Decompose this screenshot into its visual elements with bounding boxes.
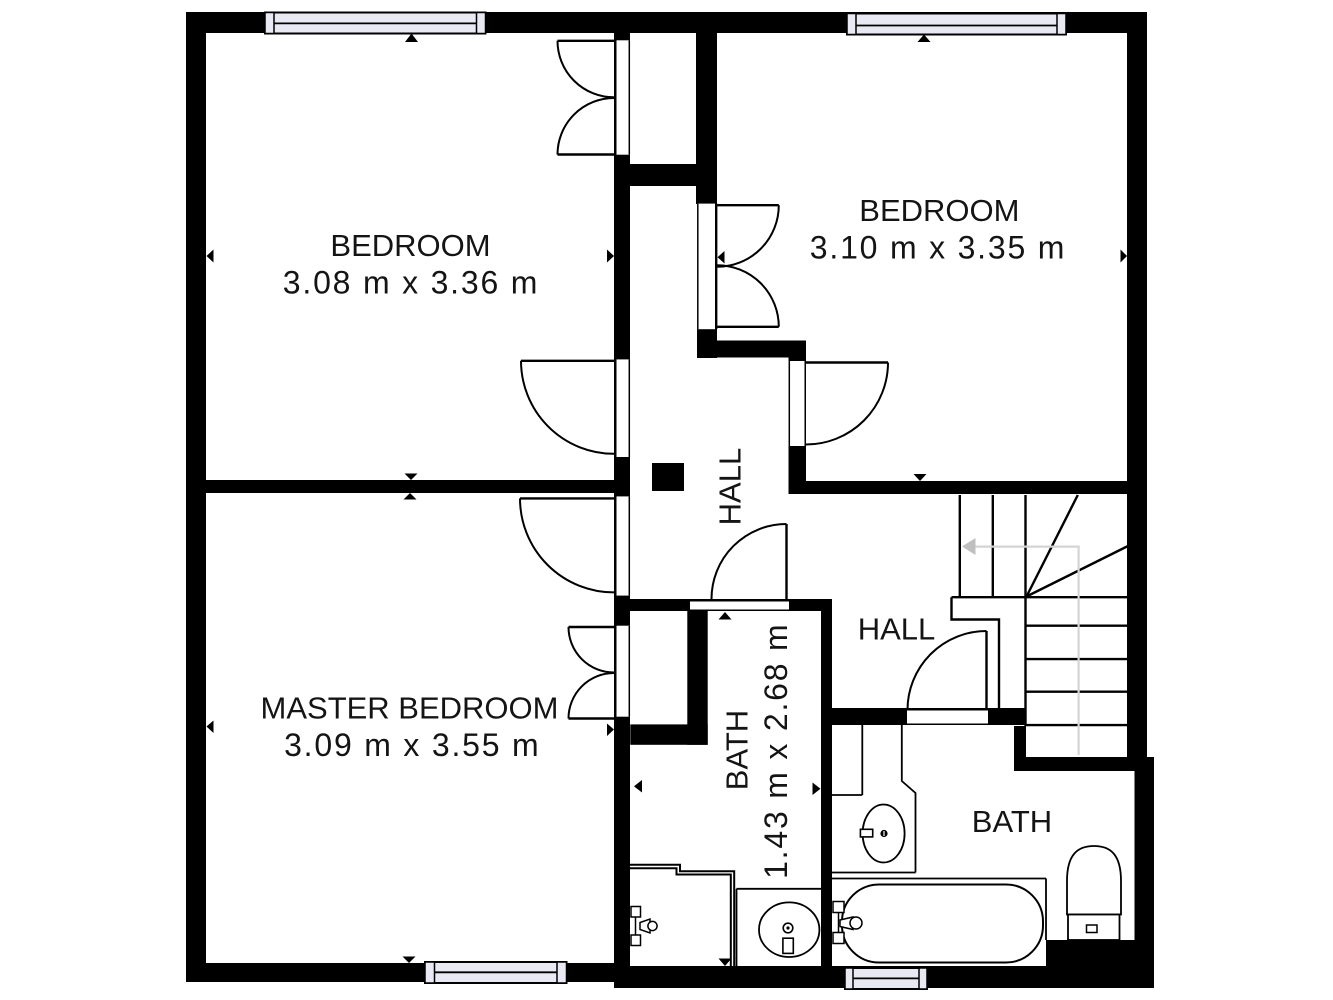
svg-text:1.43 m x 2.68 m: 1.43 m x 2.68 m: [758, 622, 794, 878]
svg-text:3.10 m x 3.35 m: 3.10 m x 3.35 m: [810, 230, 1066, 266]
svg-text:BEDROOM: BEDROOM: [859, 193, 1019, 228]
svg-text:HALL: HALL: [858, 612, 936, 647]
svg-text:3.09 m x 3.55 m: 3.09 m x 3.55 m: [284, 727, 540, 763]
svg-text:MASTER BEDROOM: MASTER BEDROOM: [261, 691, 559, 726]
svg-text:3.08 m x 3.36 m: 3.08 m x 3.36 m: [283, 265, 539, 301]
svg-text:BEDROOM: BEDROOM: [330, 228, 490, 263]
svg-text:BATH: BATH: [720, 710, 755, 790]
svg-text:HALL: HALL: [713, 448, 748, 526]
svg-text:BATH: BATH: [972, 804, 1052, 839]
